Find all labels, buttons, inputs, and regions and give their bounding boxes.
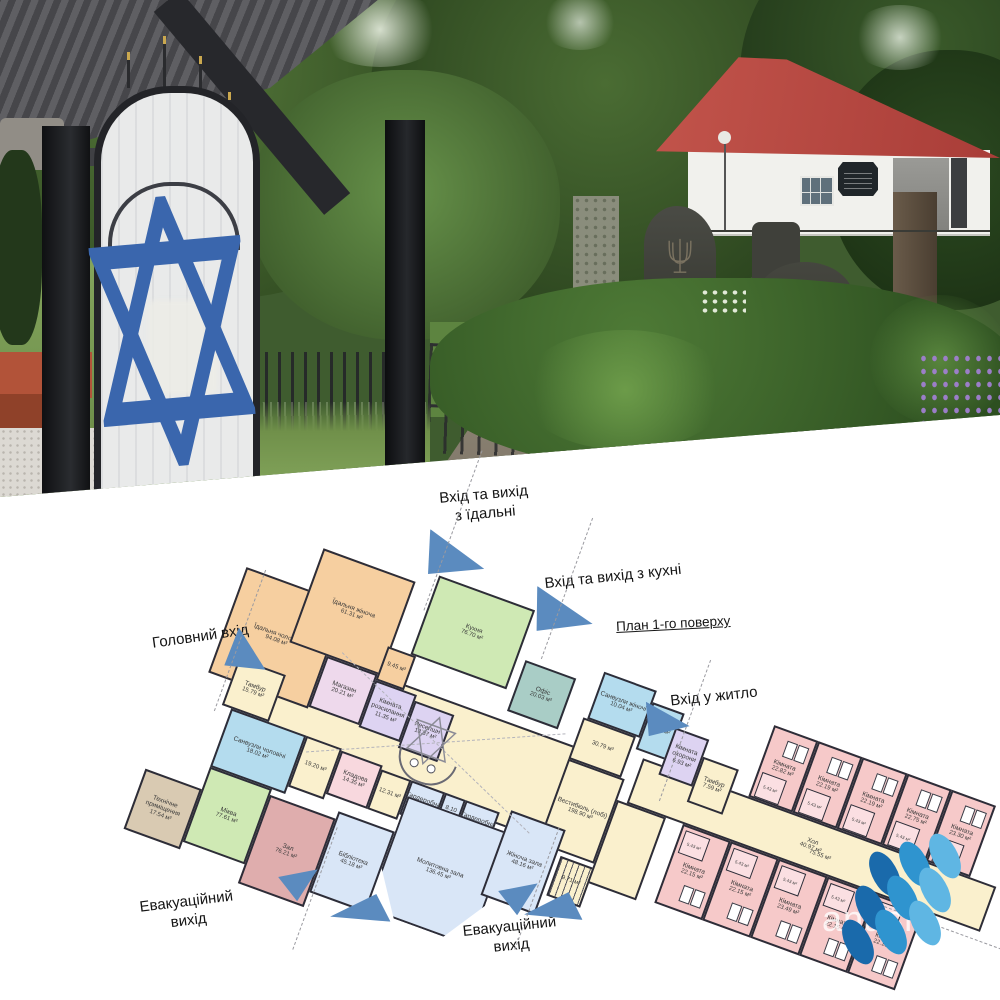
label-line: вихід <box>170 910 208 931</box>
room-office: Офіс20.03 м² <box>507 660 576 729</box>
bathroom-cell: 5.43 м² <box>754 772 787 805</box>
lamp-globe <box>718 131 731 144</box>
bath-area: 5.43 м² <box>783 876 798 886</box>
gate-spike <box>127 52 130 88</box>
bath-area: 5.43 м² <box>851 816 866 826</box>
room-area: 9.45 м² <box>385 662 406 675</box>
bathroom-cell: 5.43 м² <box>774 865 807 896</box>
bath-area: 5.43 м² <box>807 800 822 810</box>
building-plaque <box>838 162 878 196</box>
gate-post-right <box>385 120 425 500</box>
room-area: 12.31 м² <box>377 787 401 802</box>
plan-title: План 1-го поверху <box>616 613 731 634</box>
bathroom-cell: 5.43 м² <box>726 848 759 879</box>
rooms-layer: Вестибюль (лобі)198.90 м²Хол40.97 м²Їдал… <box>206 497 1000 805</box>
white-flowers <box>700 288 746 316</box>
page: Вестибюль (лобі)198.90 м²Хол40.97 м²Їдал… <box>0 0 1000 1000</box>
dark-bush <box>0 150 42 345</box>
label-line: вихід <box>493 935 531 956</box>
gate-post-left <box>42 126 90 500</box>
bath-area: 5.43 м² <box>734 859 749 869</box>
room-area: 30.79 м² <box>590 740 614 755</box>
watermark-logo <box>820 828 1000 988</box>
bath-area: 5.43 м² <box>686 841 701 851</box>
room-area: 19.20 м² <box>303 760 327 775</box>
gate-spike <box>163 36 166 88</box>
star-of-david-icon <box>85 190 260 472</box>
purple-flowers <box>918 352 1000 426</box>
fence-rail <box>690 230 990 232</box>
bathroom-cell: 5.43 м² <box>678 830 711 861</box>
label-evacuation-exit-left: Евакуаційний вихід <box>98 882 276 941</box>
label-line: Вхід та вихід <box>439 482 529 507</box>
cemetery-photo <box>0 0 1000 500</box>
bushes <box>520 330 730 450</box>
label-line: з їдальні <box>454 502 516 524</box>
menorah-icon <box>662 234 698 278</box>
room-area: 9.71 м² <box>560 875 581 888</box>
lamp-post <box>724 143 726 231</box>
label-dining-exit: Вхід та вихід з їдальні <box>391 478 579 531</box>
building-door-opening <box>951 158 967 228</box>
bathroom-cell: 5.43 м² <box>798 788 831 821</box>
sky-patch <box>850 5 950 70</box>
building-window <box>800 176 834 206</box>
bath-area: 5.43 м² <box>763 784 778 794</box>
plaque-text-lines <box>844 169 872 189</box>
label-kitchen-exit: Вхід та вихід з кухні <box>498 556 729 599</box>
